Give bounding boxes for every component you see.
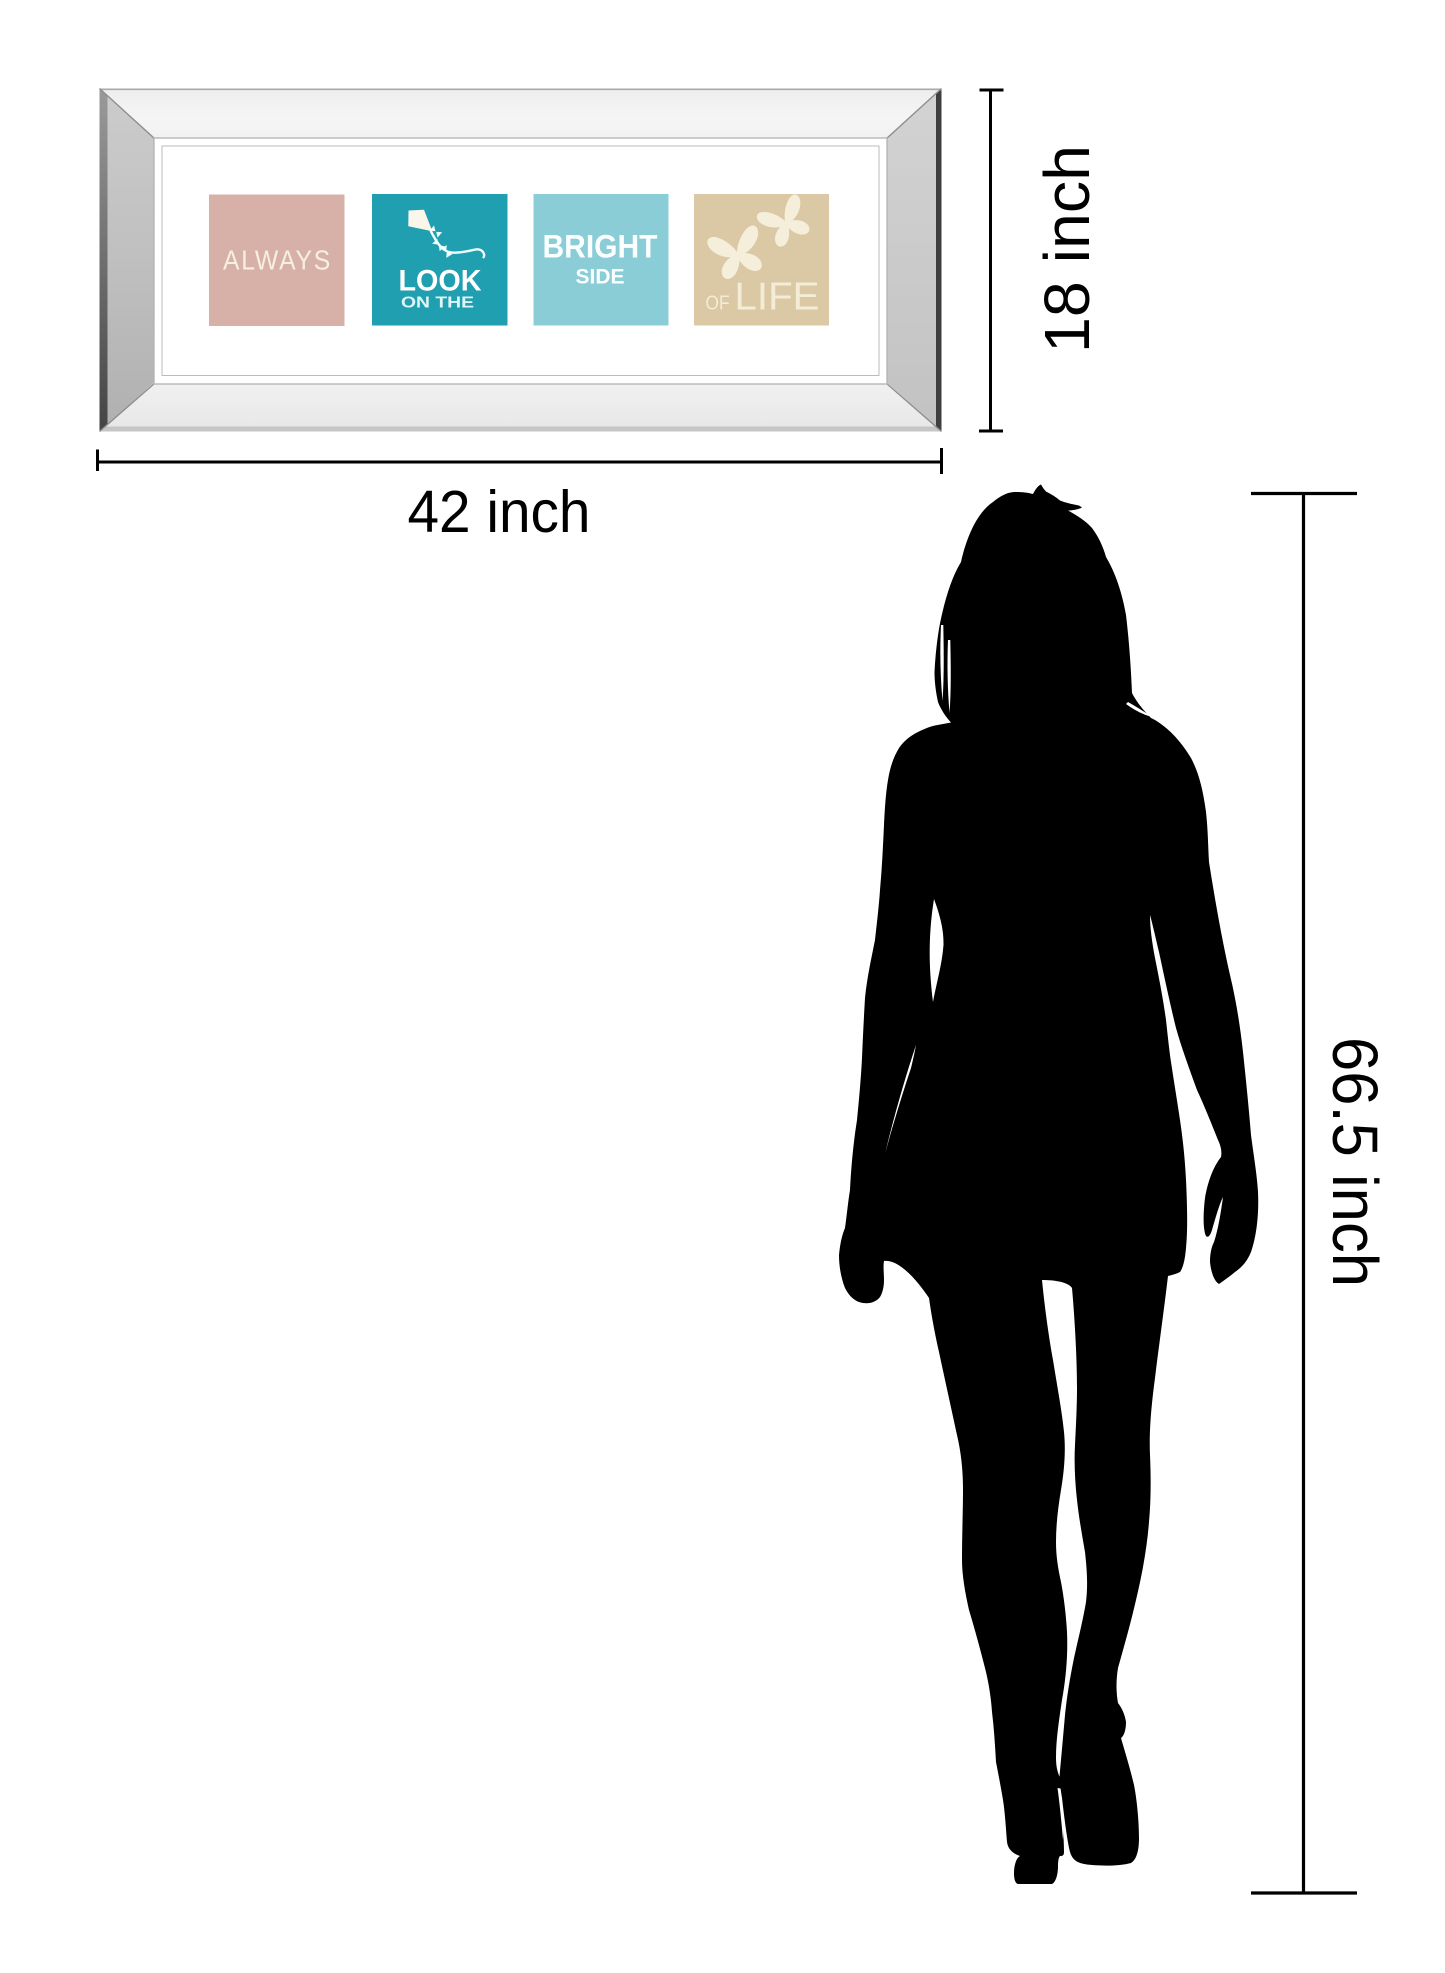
svg-text:ALWAYS: ALWAYS [223, 245, 332, 276]
svg-text:OF: OF [706, 292, 730, 315]
svg-text:LOOK: LOOK [399, 265, 482, 298]
svg-text:BRIGHT: BRIGHT [543, 229, 658, 265]
svg-text:18 inch: 18 inch [1031, 145, 1103, 353]
svg-text:ON THE: ON THE [401, 295, 474, 312]
svg-text:66.5 inch: 66.5 inch [1319, 1037, 1391, 1287]
svg-text:42 inch: 42 inch [408, 479, 591, 545]
svg-text:SIDE: SIDE [576, 265, 625, 289]
svg-text:LIFE: LIFE [735, 276, 820, 319]
